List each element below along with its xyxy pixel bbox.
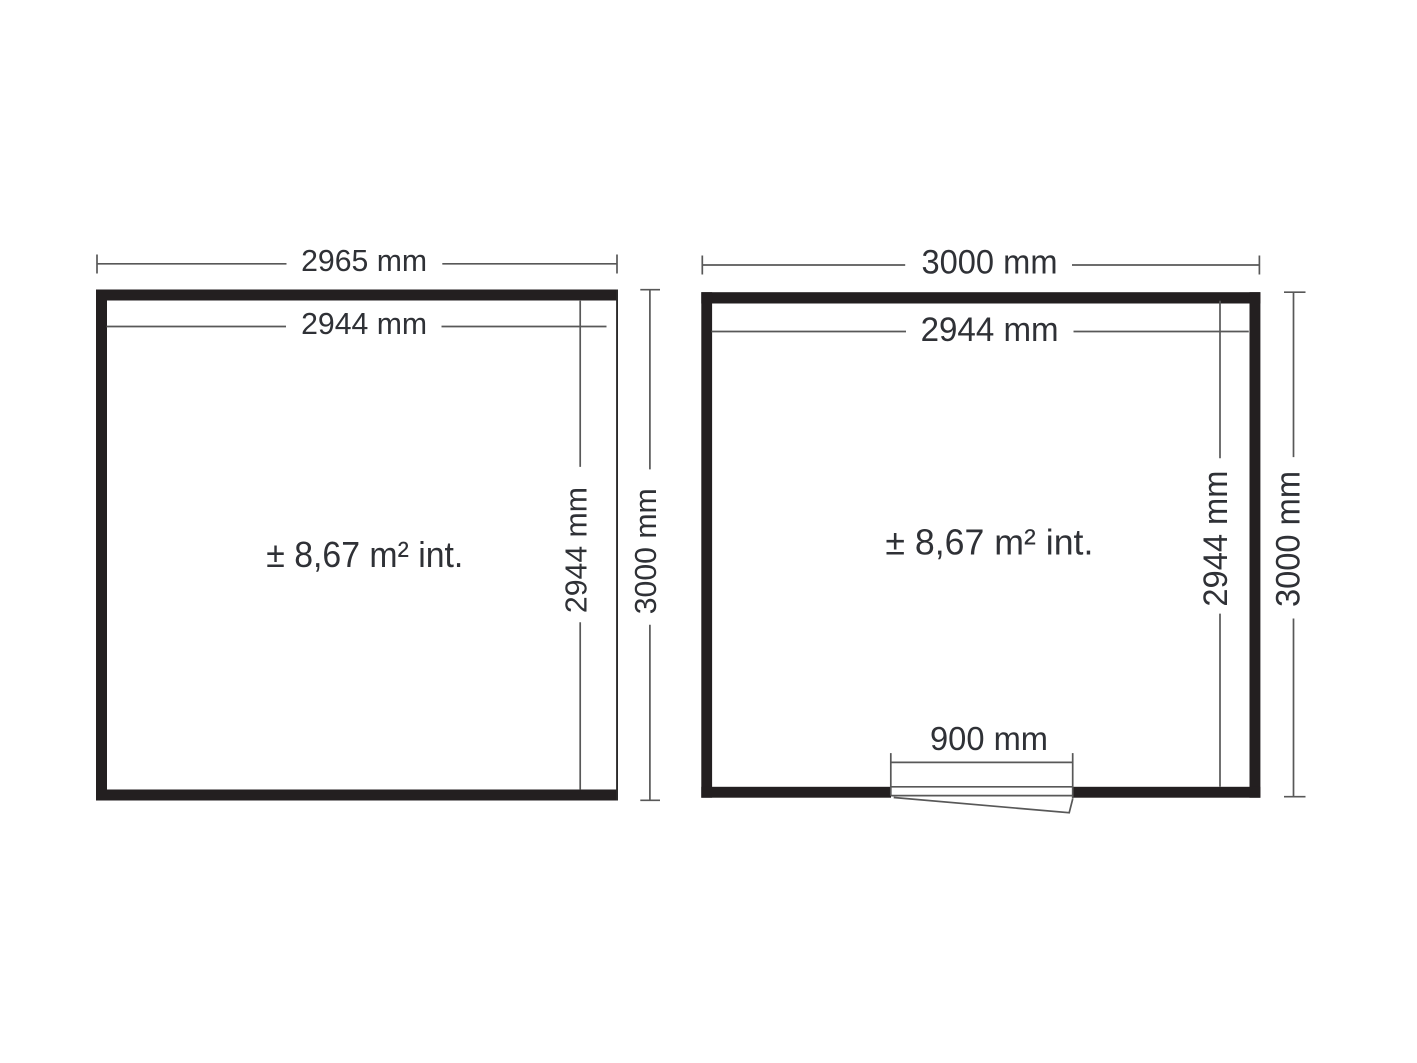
- svg-text:± 8,67 m² int.: ± 8,67 m² int.: [885, 522, 1093, 563]
- svg-text:3000 mm: 3000 mm: [629, 488, 663, 614]
- svg-text:2944 mm: 2944 mm: [559, 487, 593, 613]
- svg-text:3000 mm: 3000 mm: [922, 244, 1058, 282]
- svg-text:2965 mm: 2965 mm: [301, 244, 427, 278]
- svg-text:900 mm: 900 mm: [930, 720, 1048, 757]
- svg-text:± 8,67 m² int.: ± 8,67 m² int.: [266, 534, 463, 575]
- svg-text:3000 mm: 3000 mm: [1270, 471, 1308, 607]
- svg-text:2944 mm: 2944 mm: [921, 311, 1059, 349]
- svg-text:2944 mm: 2944 mm: [301, 307, 427, 341]
- svg-text:2944 mm: 2944 mm: [1197, 471, 1235, 607]
